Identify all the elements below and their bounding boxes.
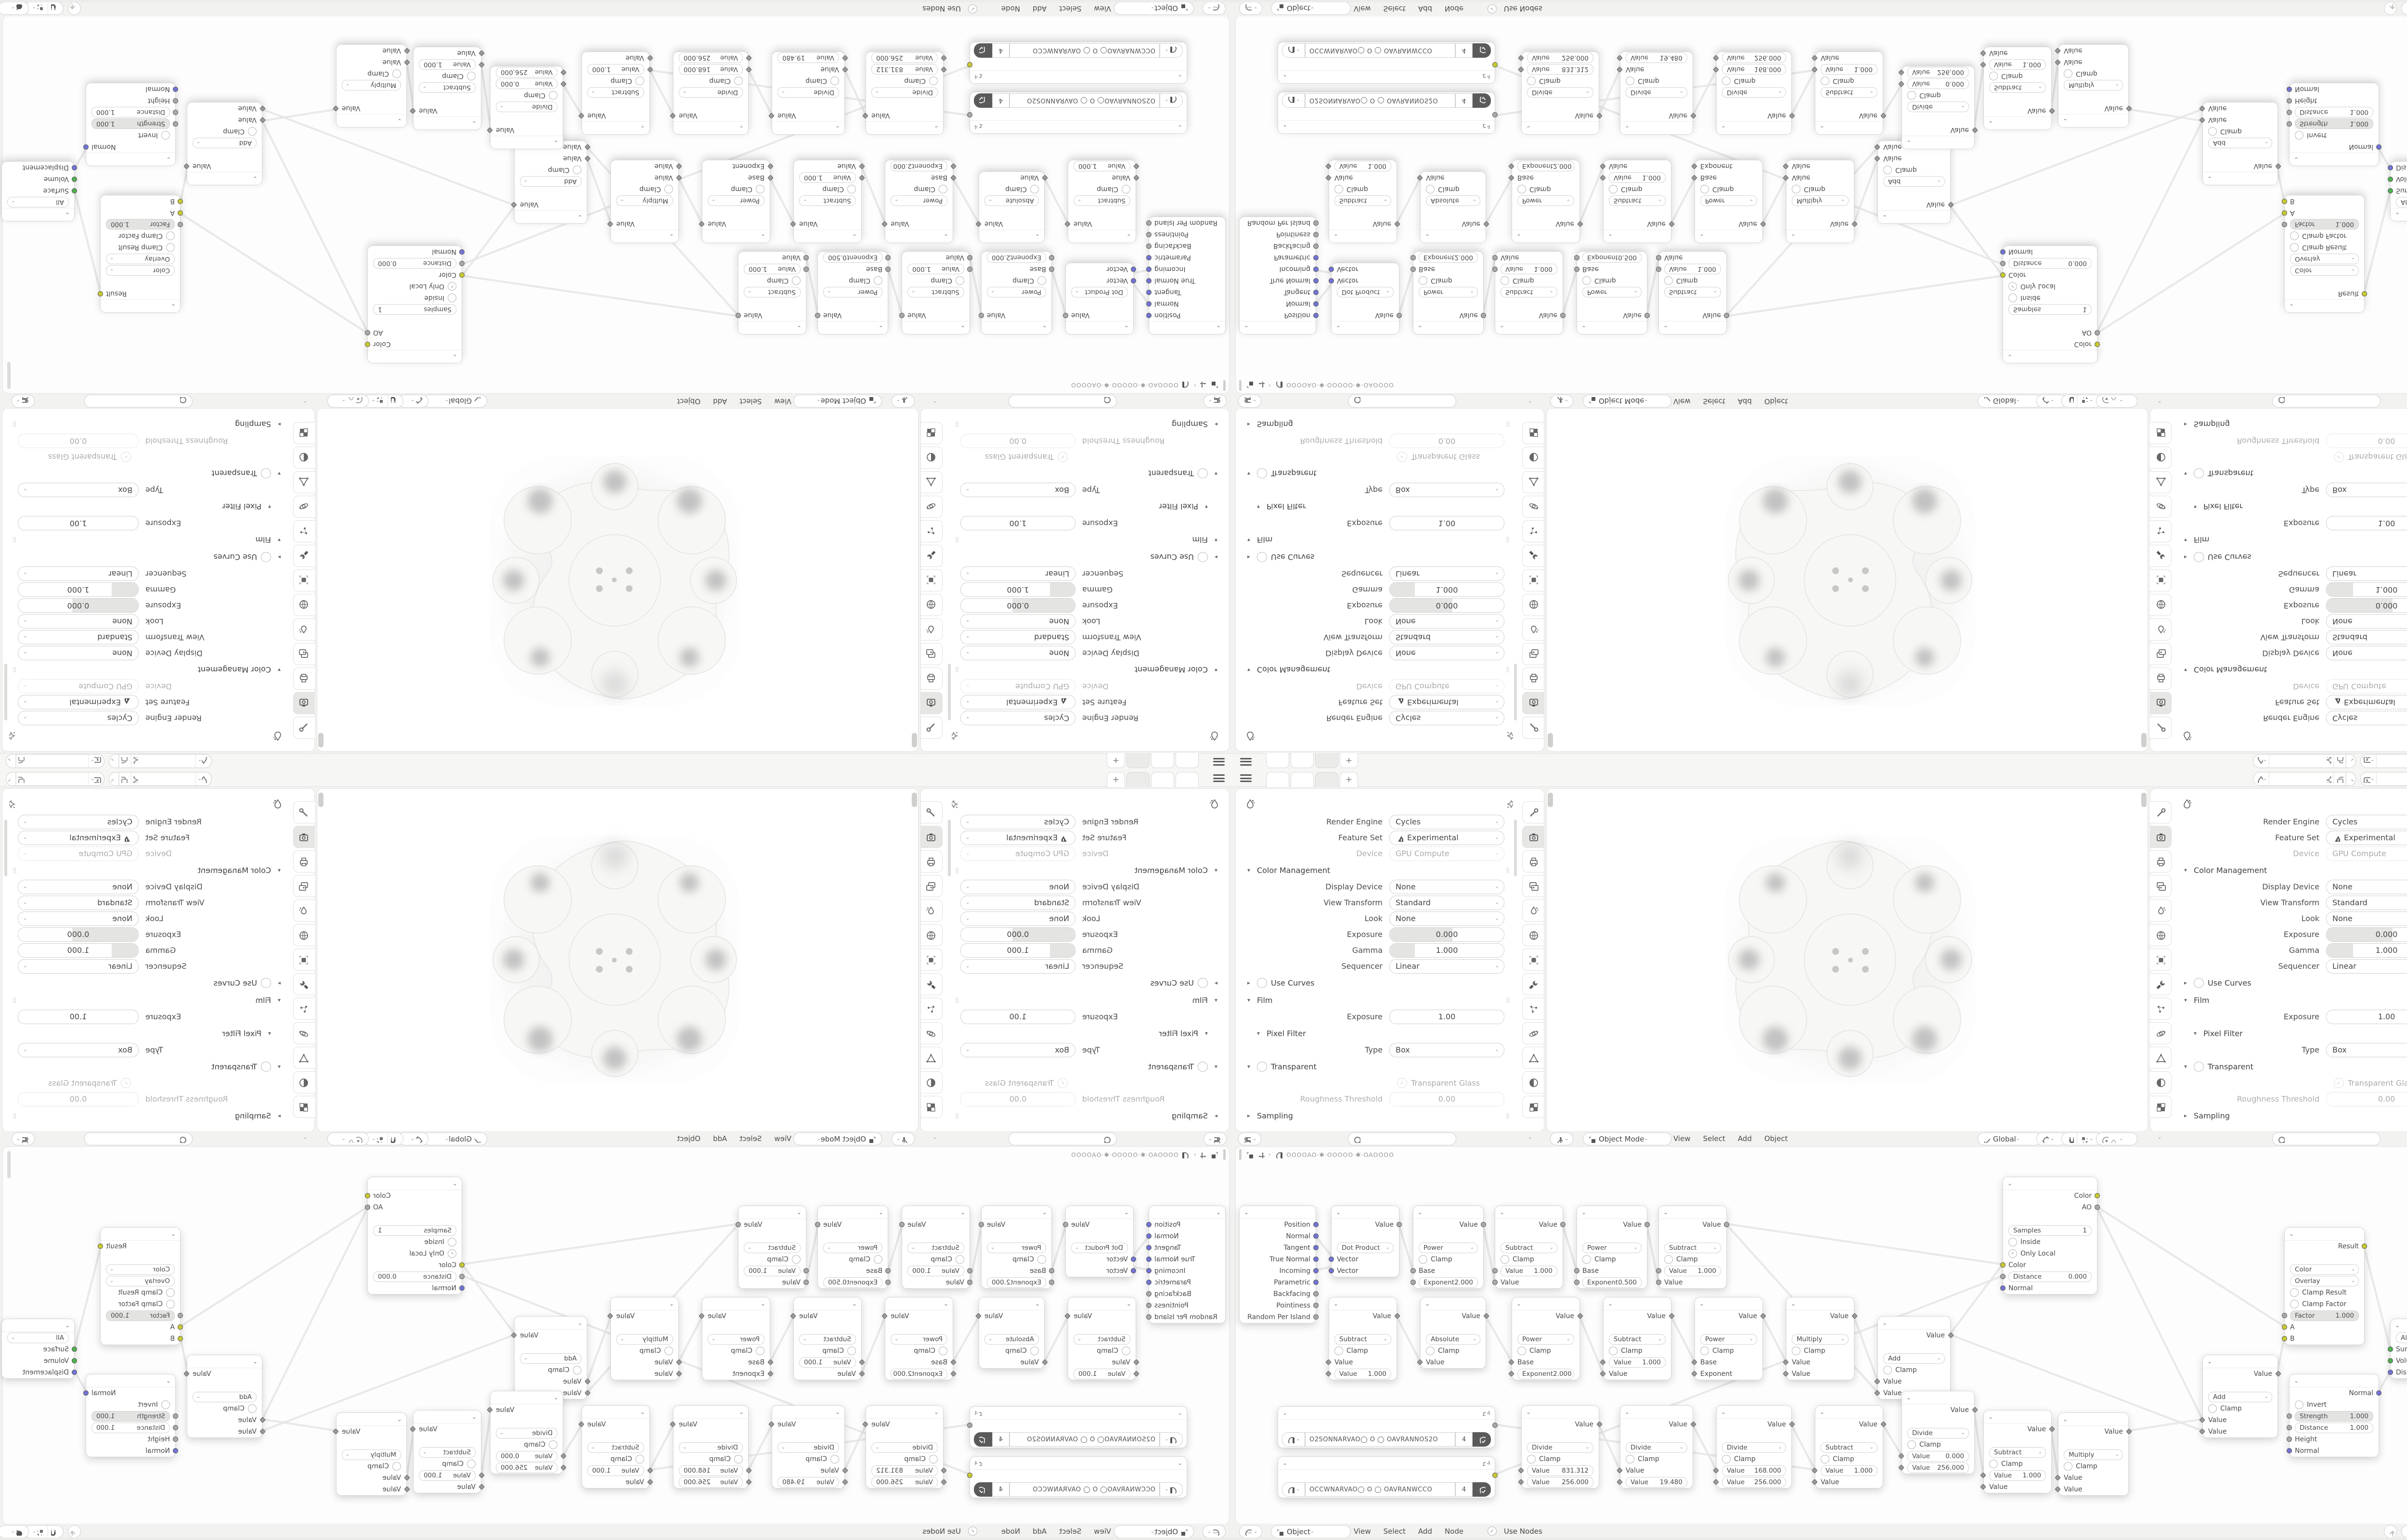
- node-dropdown[interactable]: Divide⌄: [1722, 1442, 1786, 1453]
- node[interactable]: ⌄ValueDivide⌄ClampValueValue19.480: [1620, 1405, 1693, 1489]
- node-header[interactable]: ⌄: [1902, 1391, 1974, 1404]
- input-socket[interactable]: [1411, 267, 1416, 272]
- node[interactable]: ⌄4⌄OCCWNARVAO◯ O ◯ OAVRANWCCO4: [1278, 42, 1495, 84]
- input-socket[interactable]: [803, 255, 809, 260]
- slider-gamma[interactable]: 1.000: [2326, 943, 2407, 958]
- input-socket[interactable]: [2388, 188, 2393, 193]
- node-checkbox[interactable]: [1722, 1455, 1731, 1463]
- node-value-field[interactable]: Exponent2.000: [1419, 252, 1478, 263]
- node-dropdown[interactable]: Multiply⌄: [1792, 195, 1849, 206]
- node-header[interactable]: ⌄: [611, 1297, 678, 1310]
- node-value-field[interactable]: Value1.000: [1074, 161, 1130, 171]
- section-checkbox[interactable]: [2194, 978, 2204, 988]
- node-dropdown[interactable]: Divide⌄: [1626, 1442, 1687, 1453]
- node-header[interactable]: ⌄: [2391, 1319, 2407, 1332]
- node-dropdown[interactable]: Power⌄: [1582, 1243, 1642, 1253]
- properties-tab-modifier-icon[interactable]: [921, 973, 943, 995]
- input-socket[interactable]: [173, 98, 178, 103]
- app-menu-button[interactable]: [1240, 758, 1252, 766]
- editor-type-viewport[interactable]: ⌄: [892, 1132, 915, 1145]
- node-header[interactable]: ⌄: [582, 1406, 649, 1419]
- properties-tab-material-icon[interactable]: [1522, 447, 1544, 469]
- properties-tab-data-icon[interactable]: [1522, 471, 1544, 493]
- slider-gamma[interactable]: 1.000: [2326, 583, 2407, 597]
- section-checkbox[interactable]: [1257, 552, 1267, 563]
- image-datablock-selector[interactable]: ⌄: [6, 772, 104, 786]
- node-dropdown[interactable]: Subtract⌄: [1989, 1447, 2046, 1458]
- copy-icon[interactable]: [119, 772, 131, 785]
- dropdown-view-transform[interactable]: Standard⌄: [960, 630, 1075, 645]
- properties-tab-view-layer-icon[interactable]: [921, 875, 943, 897]
- node-checkbox[interactable]: [1722, 77, 1731, 85]
- input-socket[interactable]: [2287, 1448, 2292, 1453]
- dropdown-display-device[interactable]: None⌄: [18, 880, 139, 894]
- properties-search[interactable]: [1009, 395, 1117, 408]
- output-socket[interactable]: [1644, 313, 1650, 318]
- node-value-field[interactable]: Exponent0.500: [823, 252, 882, 263]
- node-header[interactable]: ⌄: [1786, 1297, 1854, 1310]
- node-checkbox[interactable]: [2295, 131, 2303, 140]
- section-color-management[interactable]: ▾Color Management⣿: [1241, 861, 1517, 879]
- collapse-chevron-icon[interactable]: ⌄: [171, 1231, 176, 1237]
- node[interactable]: ⌄ValueSubtract⌄ClampValue1.000Value: [902, 251, 970, 334]
- node-header[interactable]: ⌄4: [1278, 1407, 1495, 1420]
- output-socket[interactable]: [1492, 1473, 1498, 1478]
- toolbar-collapse-handle[interactable]: [1548, 733, 1553, 747]
- editor-type-properties[interactable]: ⌄: [1203, 1132, 1227, 1145]
- properties-tab-render-icon[interactable]: [921, 692, 943, 714]
- dropdown-device[interactable]: GPU Compute⌄: [960, 847, 1075, 861]
- input-socket[interactable]: [2282, 199, 2287, 204]
- node-checkbox[interactable]: [392, 69, 401, 78]
- collapse-chevron-icon[interactable]: ⌄: [472, 120, 477, 127]
- node-dropdown[interactable]: Power⌄: [1517, 1334, 1574, 1345]
- node-dropdown[interactable]: Overlay⌄: [2290, 1276, 2359, 1286]
- node[interactable]: ⌄All⌄SurfaceVolumeDisplacement: [1, 161, 75, 221]
- image-id-selector[interactable]: ⌄OCCWNARVAO◯ O ◯ OAVRANWCCO4: [970, 1481, 1187, 1498]
- input-socket[interactable]: [173, 1425, 178, 1430]
- section-use-curves[interactable]: ▸Use Curves: [2177, 974, 2407, 991]
- node-header[interactable]: ⌄: [738, 321, 806, 334]
- output-socket[interactable]: [1313, 1233, 1319, 1239]
- node-dropdown[interactable]: Divide⌄: [777, 1442, 839, 1453]
- node-header[interactable]: ⌄4: [970, 120, 1187, 133]
- checkbox[interactable]: ✓: [1058, 1078, 1068, 1088]
- section-checkbox[interactable]: [261, 1062, 271, 1072]
- collapse-chevron-icon[interactable]: ⌄: [453, 353, 457, 360]
- menu-add[interactable]: Add: [1033, 1527, 1047, 1536]
- add-workspace-tab[interactable]: +: [1107, 753, 1125, 768]
- node-value-field[interactable]: Value19.480: [777, 52, 839, 63]
- collapse-chevron-icon[interactable]: ⌄: [1625, 125, 1630, 131]
- node[interactable]: ⌄ColorAOSamples1Inside✓Only LocalColorDi…: [2003, 245, 2097, 363]
- section-pixel-filter[interactable]: ▾Pixel Filter: [5, 1025, 287, 1042]
- node-checkbox[interactable]: [1527, 77, 1536, 85]
- node-header[interactable]: ⌄4: [1278, 70, 1495, 83]
- image-id-selector[interactable]: ⌄O2SONNARVAO◯ O ◯ OAVRANNOS2O4: [1278, 92, 1495, 109]
- properties-tab-modifier-icon[interactable]: [1522, 973, 1544, 995]
- node-dropdown[interactable]: Color⌄: [106, 1264, 175, 1275]
- input-socket[interactable]: [2282, 1324, 2287, 1330]
- node-value-field[interactable]: Value256.000: [679, 52, 743, 63]
- properties-tab-view-layer-icon[interactable]: [1522, 875, 1544, 897]
- node-dropdown[interactable]: Divide⌄: [777, 87, 839, 98]
- section-color-management[interactable]: ▾Color Management⣿: [2177, 861, 2407, 879]
- snap-controls[interactable]: ⌄: [24, 1525, 64, 1538]
- node-value-field[interactable]: Distance0.000: [2008, 1271, 2092, 1282]
- dropdown-feature-set[interactable]: Experimental⌄: [960, 831, 1075, 845]
- section-sampling[interactable]: ▸Sampling⣿: [1241, 416, 1517, 433]
- collapse-chevron-icon[interactable]: ⌄: [2063, 117, 2068, 124]
- input-socket[interactable]: [2000, 249, 2006, 255]
- menu-select[interactable]: Select: [1703, 398, 1725, 406]
- node-checkbox[interactable]: [1122, 185, 1130, 193]
- node-header[interactable]: ⌄: [368, 1177, 462, 1190]
- node-value-field[interactable]: Value1.000: [1334, 161, 1391, 171]
- node-dropdown[interactable]: Subtract⌄: [1664, 1243, 1721, 1253]
- proportional-editing[interactable]: ⌄: [327, 1132, 369, 1145]
- properties-tab-data-icon[interactable]: [293, 471, 315, 493]
- dropdown-device[interactable]: GPU Compute⌄: [1389, 680, 1504, 694]
- node-checkbox[interactable]: [1626, 1455, 1634, 1463]
- node[interactable]: ⌄ValueSubtract⌄ClampValueValue1.000: [1329, 1297, 1397, 1380]
- node-dropdown[interactable]: Subtract⌄: [1821, 87, 1877, 98]
- input-socket[interactable]: [2388, 1347, 2393, 1352]
- sidebar-collapse-handle[interactable]: [2141, 793, 2147, 807]
- dropdown-device[interactable]: GPU Compute⌄: [960, 680, 1075, 694]
- section-transparent[interactable]: ▾Transparent: [5, 465, 287, 482]
- material-datablock-selector[interactable]: ⌄: [2253, 772, 2356, 786]
- node-value-field[interactable]: Distance0.000: [373, 258, 456, 269]
- dropdown-device[interactable]: GPU Compute⌄: [18, 847, 139, 861]
- node-dropdown[interactable]: Multiply⌄: [342, 1450, 401, 1460]
- slider-roughness-threshold[interactable]: 0.00: [1389, 434, 1504, 449]
- node-checkbox[interactable]: [939, 1347, 947, 1355]
- output-socket[interactable]: [1644, 1222, 1650, 1227]
- node-header[interactable]: ⌄: [1577, 1206, 1647, 1219]
- dropdown-render-engine[interactable]: Cycles⌄: [2326, 711, 2407, 726]
- node-header[interactable]: ⌄: [414, 1411, 481, 1424]
- users-count[interactable]: 4: [1455, 1432, 1473, 1447]
- node-checkbox[interactable]: [635, 1455, 644, 1463]
- menu-add[interactable]: Add: [713, 398, 727, 406]
- input-socket[interactable]: [1574, 255, 1579, 260]
- fake-user-shield-icon[interactable]: [974, 1482, 992, 1497]
- section-color-management[interactable]: ▾Color Management⣿: [5, 661, 287, 679]
- input-socket[interactable]: [459, 261, 465, 266]
- image-datablock-selector[interactable]: ⌄: [2360, 754, 2407, 768]
- node-dropdown[interactable]: Power⌄: [891, 195, 947, 206]
- collapse-chevron-icon[interactable]: ⌄: [739, 125, 744, 131]
- output-socket[interactable]: [736, 313, 741, 318]
- properties-tab-texture-icon[interactable]: [2150, 1096, 2172, 1118]
- node-header[interactable]: ⌄: [1512, 230, 1579, 243]
- transform-orientation[interactable]: Global⌄: [423, 395, 487, 408]
- node-dropdown[interactable]: Add⌄: [520, 1353, 582, 1364]
- input-socket[interactable]: [885, 1268, 891, 1273]
- image-id-selector[interactable]: ⌄O2SONNARVAO◯ O ◯ OAVRANNOS2O4: [1278, 1431, 1495, 1448]
- node-dropdown[interactable]: Subtract⌄: [1074, 1334, 1130, 1345]
- dropdown-type[interactable]: Box⌄: [2326, 1043, 2407, 1057]
- node-checkbox[interactable]: [2290, 1288, 2299, 1297]
- menu-add[interactable]: Add: [1738, 398, 1752, 406]
- node-checkbox[interactable]: [1426, 1347, 1435, 1355]
- pin-icon[interactable]: [952, 799, 960, 808]
- node-value-field[interactable]: Exponent0.500: [823, 1277, 882, 1288]
- properties-tab-tool-icon[interactable]: [293, 717, 315, 739]
- menu-node[interactable]: Node: [1445, 1527, 1463, 1536]
- node-value-field[interactable]: Value256.000: [871, 1477, 938, 1488]
- input-socket[interactable]: [2388, 1370, 2393, 1375]
- properties-tab-modifier-icon[interactable]: [2150, 973, 2172, 995]
- slider-gamma[interactable]: 1.000: [1389, 943, 1504, 958]
- node[interactable]: ⌄ColorAOSamples1Inside✓Only LocalColorDi…: [2003, 1177, 2097, 1295]
- workspace-tab[interactable]: [1151, 753, 1174, 768]
- node[interactable]: ⌄ValuePower⌄ClampBaseExponent2.000: [981, 251, 1052, 334]
- node-header[interactable]: ⌄: [101, 1228, 180, 1241]
- node-checkbox[interactable]: [874, 276, 882, 285]
- node-value-field[interactable]: Value1.000: [587, 64, 644, 75]
- browse-image-icon[interactable]: ⌄: [1282, 1432, 1305, 1447]
- properties-tab-output-icon[interactable]: [293, 667, 315, 690]
- dropdown-look[interactable]: None⌄: [18, 615, 139, 629]
- node-header[interactable]: ⌄: [1659, 321, 1726, 334]
- node-dropdown[interactable]: Dot Product⌄: [1071, 1243, 1128, 1253]
- dropdown-view-transform[interactable]: Standard⌄: [1389, 630, 1504, 645]
- node-checkbox[interactable]: [756, 185, 764, 193]
- close-icon[interactable]: [6, 772, 16, 785]
- input-socket[interactable]: [1049, 267, 1054, 272]
- node-header[interactable]: ⌄: [794, 1297, 861, 1310]
- input-socket[interactable]: [2388, 177, 2393, 182]
- node-value-field[interactable]: Exponent0.500: [1582, 252, 1642, 263]
- input-socket[interactable]: [459, 1262, 465, 1268]
- node-header[interactable]: ⌄: [1421, 1297, 1486, 1310]
- node-header[interactable]: ⌄: [1240, 1206, 1316, 1219]
- scrollbar[interactable]: [1514, 820, 1517, 876]
- section-use-curves[interactable]: ▸Use Curves: [948, 974, 1224, 991]
- node[interactable]: ⌄ValueSubtract⌄ClampValue1.000Value: [1603, 1297, 1671, 1380]
- dropdown-display-device[interactable]: None⌄: [18, 646, 139, 661]
- slider-roughness-threshold[interactable]: 0.00: [18, 1092, 139, 1106]
- output-socket[interactable]: [1146, 313, 1152, 318]
- node-checkbox[interactable]: [1419, 1255, 1427, 1264]
- properties-search[interactable]: [2272, 1132, 2381, 1145]
- node-value-field[interactable]: Factor1.000: [106, 219, 175, 230]
- collapse-chevron-icon[interactable]: ⌄: [1608, 233, 1613, 240]
- node-header[interactable]: ⌄: [1149, 1206, 1225, 1219]
- properties-tab-scene-icon[interactable]: [1522, 899, 1544, 922]
- input-socket[interactable]: [2287, 1437, 2292, 1442]
- properties-tab-render-icon[interactable]: [2150, 826, 2172, 848]
- input-socket[interactable]: [1049, 1268, 1054, 1273]
- slider-roughness-threshold[interactable]: 0.00: [1389, 1092, 1504, 1106]
- output-socket[interactable]: [1146, 220, 1152, 226]
- proportional-editing[interactable]: ⌄: [2096, 1132, 2137, 1145]
- node-checkbox[interactable]: [1792, 185, 1800, 193]
- node-dropdown[interactable]: Divide⌄: [1527, 1442, 1593, 1453]
- chevron-down-icon[interactable]: ⌄: [933, 400, 937, 405]
- pin-icon[interactable]: [131, 755, 143, 768]
- input-socket[interactable]: [885, 267, 891, 272]
- node-value-field[interactable]: Factor1.000: [2290, 1310, 2359, 1321]
- node-header[interactable]: ⌄: [1495, 321, 1563, 334]
- node-header[interactable]: ⌄: [818, 321, 888, 334]
- node-dropdown[interactable]: Subtract⌄: [1334, 1334, 1391, 1345]
- dropdown-look[interactable]: None⌄: [960, 911, 1075, 926]
- image-name-field[interactable]: [28, 755, 88, 768]
- input-socket[interactable]: [1574, 267, 1579, 272]
- shader-type-selector[interactable]: Object⌄: [1114, 2, 1194, 15]
- node-dropdown[interactable]: Power⌄: [823, 1243, 882, 1253]
- section-pixel-filter[interactable]: ▾Pixel Filter: [2177, 498, 2407, 515]
- properties-tab-physics-icon[interactable]: [293, 496, 315, 518]
- input-socket[interactable]: [1329, 267, 1334, 272]
- dropdown-feature-set[interactable]: Experimental⌄: [18, 831, 139, 845]
- properties-search[interactable]: [84, 395, 193, 408]
- node-dropdown[interactable]: Add⌄: [193, 1392, 257, 1402]
- node-header[interactable]: ⌄: [1329, 230, 1397, 243]
- section-transparent[interactable]: ▾Transparent: [2177, 1058, 2407, 1075]
- node-checkbox[interactable]: [956, 276, 964, 285]
- input-socket[interactable]: [1492, 1280, 1498, 1285]
- node-value-field[interactable]: Value168.000: [1722, 1465, 1786, 1476]
- node[interactable]: ⌄ValueAdd⌄ClampValueValue: [514, 1316, 587, 1399]
- node[interactable]: ⌄ValueSubtract⌄ClampValue1.000Value: [413, 47, 481, 130]
- node-checkbox[interactable]: [448, 1238, 456, 1246]
- collapse-chevron-icon[interactable]: ⌄: [1791, 1300, 1796, 1307]
- node-value-field[interactable]: Value168.000: [679, 1465, 743, 1476]
- node-value-field[interactable]: Distance1.000: [91, 1423, 170, 1433]
- properties-tab-object-icon[interactable]: [921, 569, 943, 591]
- node-dropdown[interactable]: Color⌄: [2290, 1264, 2359, 1275]
- collapse-chevron-icon[interactable]: ⌄: [1882, 214, 1887, 220]
- sidebar-collapse-handle[interactable]: [318, 733, 324, 747]
- chevron-down-icon[interactable]: ⌄: [2158, 1135, 2161, 1140]
- output-socket[interactable]: [365, 330, 370, 335]
- transform-orientation[interactable]: Global⌄: [1978, 395, 2042, 408]
- collapse-chevron-icon[interactable]: ⌄: [1124, 1209, 1129, 1216]
- copy-icon[interactable]: [16, 755, 28, 768]
- node-dropdown[interactable]: Overlay⌄: [2290, 254, 2359, 264]
- properties-tab-world-icon[interactable]: [1522, 594, 1544, 616]
- section-pixel-filter[interactable]: ▾Pixel Filter: [5, 498, 287, 515]
- collapse-chevron-icon[interactable]: ⌄: [1244, 1209, 1249, 1216]
- input-socket[interactable]: [72, 188, 77, 193]
- output-socket[interactable]: [1146, 255, 1152, 260]
- section-color-management[interactable]: ▾Color Management⣿: [5, 861, 287, 879]
- node-header[interactable]: ⌄: [1717, 121, 1791, 134]
- node[interactable]: ⌄ResultColor⌄Overlay⌄Clamp ResultClamp F…: [2284, 195, 2365, 313]
- dropdown-sequencer[interactable]: Linear⌄: [18, 567, 139, 581]
- input-socket[interactable]: [72, 1347, 77, 1352]
- material-name-field[interactable]: [143, 755, 195, 768]
- properties-tab-output-icon[interactable]: [2150, 850, 2172, 873]
- dropdown-sequencer[interactable]: Linear⌄: [960, 567, 1075, 581]
- slider-exposure[interactable]: 1.00: [960, 516, 1075, 531]
- output-socket[interactable]: [1146, 1303, 1152, 1308]
- properties-tab-output-icon[interactable]: [921, 667, 943, 690]
- properties-tab-output-icon[interactable]: [1522, 850, 1544, 873]
- browse-image-icon[interactable]: ⌄: [1282, 43, 1305, 58]
- input-socket[interactable]: [178, 1336, 183, 1341]
- checkbox[interactable]: ✓: [2334, 1078, 2344, 1088]
- output-socket[interactable]: [365, 342, 370, 347]
- scrollbar[interactable]: [4, 820, 7, 876]
- node[interactable]: ⌄ValueSubtract⌄ClampValue1.000Value: [1495, 1206, 1563, 1289]
- node[interactable]: ⌄4⌄O2SONNARVAO◯ O ◯ OAVRANNOS2O4: [1278, 1406, 1495, 1448]
- node-dropdown[interactable]: Power⌄: [823, 287, 882, 297]
- properties-tab-material-icon[interactable]: [2150, 447, 2172, 469]
- node-value-field[interactable]: Value256.000: [1527, 1477, 1593, 1488]
- pin-icon[interactable]: [2322, 772, 2334, 785]
- node-checkbox[interactable]: [664, 1347, 673, 1355]
- properties-tab-render-icon[interactable]: [1522, 692, 1544, 714]
- node-dropdown[interactable]: Subtract⌄: [419, 1447, 476, 1458]
- node-dropdown[interactable]: Add⌄: [1883, 1353, 1945, 1364]
- section-checkbox[interactable]: [1198, 552, 1208, 563]
- image-id-selector[interactable]: ⌄O2SONNARVAO◯ O ◯ OAVRANNOS2O4: [970, 1431, 1187, 1448]
- properties-tab-view-layer-icon[interactable]: [2150, 643, 2172, 665]
- image-name-field[interactable]: O2SONNARVAO◯ O ◯ OAVRANNOS2O: [1009, 1432, 1160, 1447]
- node-dropdown[interactable]: Add⌄: [2208, 1392, 2272, 1402]
- material-datablock-selector[interactable]: ⌄: [109, 754, 212, 768]
- node[interactable]: ⌄ValueSubtract⌄ClampValueValue1.000: [1068, 1297, 1136, 1380]
- output-socket[interactable]: [1313, 1303, 1319, 1308]
- node-checkbox[interactable]: [792, 1255, 801, 1264]
- input-socket[interactable]: [1574, 1280, 1579, 1285]
- fake-user-shield-icon[interactable]: [1473, 1482, 1491, 1497]
- collapse-chevron-icon[interactable]: ⌄: [2289, 303, 2294, 309]
- node[interactable]: ⌄ValueAdd⌄ClampValueValue: [1877, 141, 1951, 224]
- node-dropdown[interactable]: Subtract⌄: [1074, 195, 1130, 206]
- node[interactable]: ⌄ValueAdd⌄ClampValueValue: [2202, 102, 2278, 185]
- material-name-field[interactable]: [2269, 772, 2322, 785]
- gizmo-button[interactable]: [68, 1525, 81, 1538]
- node-header[interactable]: ⌄: [491, 1391, 563, 1404]
- node-header[interactable]: ⌄: [673, 121, 748, 134]
- node-dropdown[interactable]: Subtract⌄: [1334, 195, 1391, 206]
- node-dropdown[interactable]: All⌄: [7, 1333, 69, 1343]
- collapse-chevron-icon[interactable]: ⌄: [960, 324, 965, 331]
- node-checkbox[interactable]: [792, 276, 801, 285]
- collapse-chevron-icon[interactable]: ⌄: [1216, 324, 1221, 331]
- browse-image-icon[interactable]: ⌄: [1160, 93, 1183, 108]
- pin-icon[interactable]: [1504, 799, 1513, 808]
- toolbar-collapse-handle[interactable]: [912, 793, 917, 807]
- node-checkbox[interactable]: [166, 231, 175, 240]
- node-dropdown[interactable]: Overlay⌄: [106, 1276, 175, 1286]
- node-header[interactable]: ⌄4: [970, 1407, 1187, 1420]
- output-socket[interactable]: [1146, 1245, 1152, 1250]
- input-socket[interactable]: [2287, 98, 2292, 103]
- input-socket[interactable]: [173, 121, 178, 127]
- section-pixel-filter[interactable]: ▾Pixel Filter: [948, 1025, 1224, 1042]
- properties-tab-material-icon[interactable]: [2150, 1071, 2172, 1093]
- properties-tab-data-icon[interactable]: [2150, 471, 2172, 493]
- node-header[interactable]: ⌄: [1984, 1411, 2051, 1424]
- input-socket[interactable]: [1492, 267, 1498, 272]
- node-checkbox[interactable]: [1037, 1255, 1046, 1264]
- properties-tab-render-icon[interactable]: [1522, 826, 1544, 848]
- node-checkbox[interactable]: [956, 1255, 964, 1264]
- dropdown-type[interactable]: Box⌄: [960, 1043, 1075, 1057]
- collapse-chevron-icon[interactable]: ⌄: [1882, 1320, 1887, 1326]
- node-checkbox[interactable]: [549, 1440, 557, 1449]
- node-checkbox[interactable]: [635, 77, 644, 85]
- node-value-field[interactable]: Value1.000: [907, 1266, 964, 1276]
- properties-tab-scene-icon[interactable]: [1522, 618, 1544, 641]
